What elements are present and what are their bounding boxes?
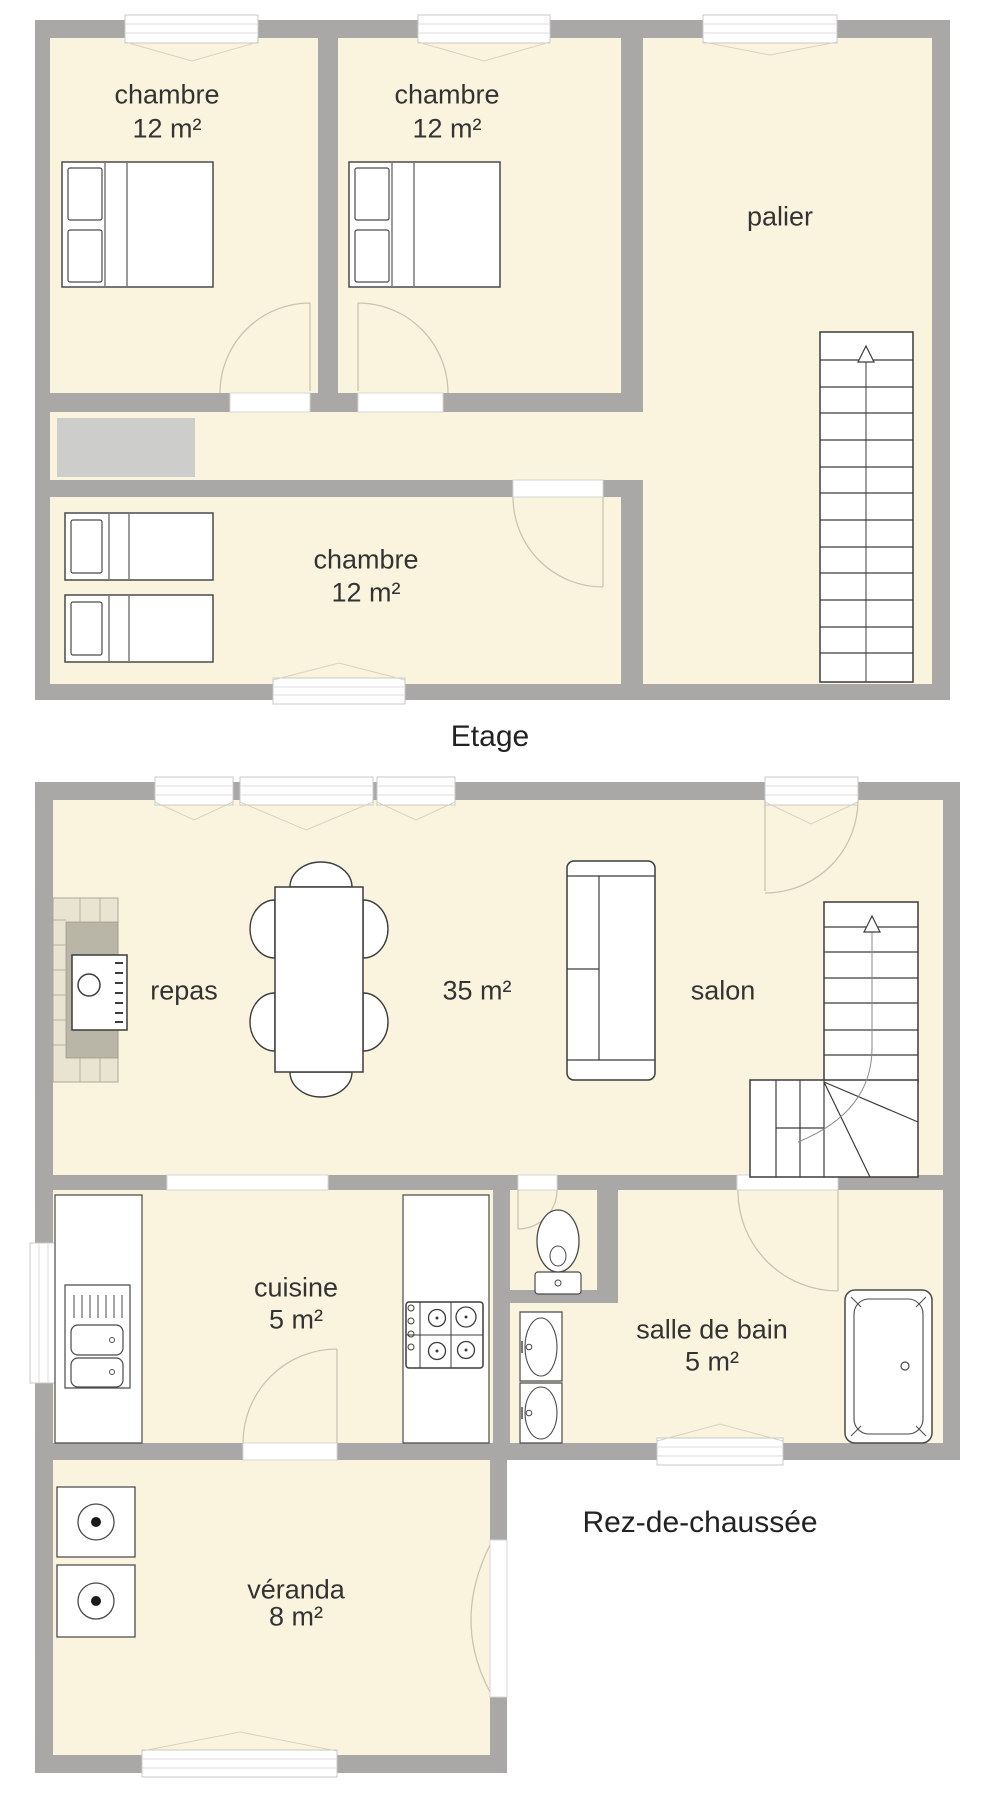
window-icon <box>377 777 455 805</box>
ground-floor-plan <box>30 777 960 1777</box>
window-icon <box>703 15 837 43</box>
double-bed-icon <box>62 162 213 287</box>
toilet-icon <box>535 1210 581 1294</box>
room-label-bathroom-area: 5 m² <box>685 1349 739 1376</box>
washing-machine-icon <box>57 1565 135 1637</box>
single-bed-icon <box>65 513 213 580</box>
room-label-living-area: 35 m² <box>442 978 511 1005</box>
window-icon <box>155 777 233 805</box>
kitchen-sink-icon <box>65 1285 130 1388</box>
window-icon <box>125 15 258 43</box>
window-icon <box>273 678 405 704</box>
floor-plan-drawing <box>0 0 1000 1815</box>
room-label-bedroom3-name: chambre <box>313 547 418 574</box>
window-icon <box>30 1243 58 1383</box>
floor-title-upper: Etage <box>451 722 529 752</box>
single-bed-icon <box>65 595 213 662</box>
room-label-bedroom1-area: 12 m² <box>132 116 201 143</box>
room-label-landing: palier <box>747 204 813 231</box>
window-icon <box>657 1438 783 1465</box>
room-label-bedroom2-area: 12 m² <box>412 116 481 143</box>
wood-stove-icon <box>72 955 127 1030</box>
room-label-bedroom2-name: chambre <box>394 82 499 109</box>
stairs-icon <box>820 332 913 682</box>
fireplace-icon <box>53 898 127 1082</box>
sofa-icon <box>567 861 655 1080</box>
stove-icon <box>406 1302 483 1368</box>
sink-icon <box>520 1312 562 1443</box>
room-label-dining: repas <box>150 978 218 1005</box>
room-label-kitchen-name: cuisine <box>254 1275 338 1302</box>
room-label-bedroom1-name: chambre <box>114 82 219 109</box>
window-icon <box>240 777 373 805</box>
room-label-veranda-name: véranda <box>247 1577 345 1604</box>
room-label-veranda-area: 8 m² <box>269 1604 323 1631</box>
floor-title-ground: Rez-de-chaussée <box>582 1508 817 1538</box>
window-icon <box>142 1750 337 1777</box>
room-label-living-name: salon <box>691 978 756 1005</box>
washing-machine-icon <box>57 1487 135 1557</box>
closet-block <box>57 418 195 477</box>
bathtub-icon <box>845 1290 932 1443</box>
room-label-kitchen-area: 5 m² <box>269 1307 323 1334</box>
floor-plan-page: chambre 12 m² chambre 12 m² chambre 12 m… <box>0 0 1000 1815</box>
room-label-bathroom-name: salle de bain <box>636 1317 788 1344</box>
double-bed-icon <box>349 162 500 287</box>
room-label-bedroom3-area: 12 m² <box>331 580 400 607</box>
glazed-door-icon <box>765 777 858 805</box>
window-icon <box>418 15 550 43</box>
